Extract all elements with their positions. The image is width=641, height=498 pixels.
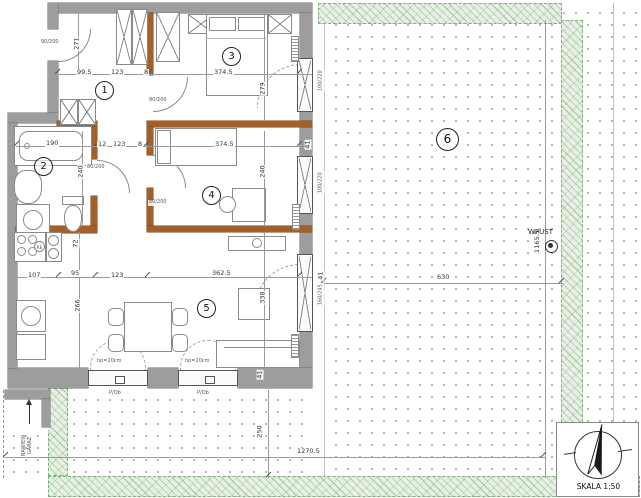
toilet-tank (62, 196, 84, 205)
garage-vent-wall-top (5, 390, 50, 399)
window-note-2: P/Ob (196, 391, 210, 397)
dim-label: 266 (75, 298, 82, 312)
dim-label: 41 (257, 369, 264, 379)
room-6-label: 6 (444, 132, 452, 146)
paving-edge-line (324, 3, 325, 478)
wall-right-3 (300, 214, 312, 254)
room3-door-swing (153, 77, 188, 112)
room-4-label: 4 (208, 190, 214, 201)
wpust-label: WPUST (527, 229, 554, 237)
cabinet-room3-right (268, 14, 292, 34)
dim-label: 41 (305, 139, 312, 149)
window-room5-balcony (297, 254, 313, 332)
plot-boundary-line (613, 3, 614, 476)
dim-label: 1270.5 (296, 448, 321, 455)
dim-label: 95 (70, 270, 80, 277)
window-bottom-2 (178, 370, 238, 386)
dining-table (124, 302, 172, 352)
window-spec-room5: 160/245 (319, 283, 325, 306)
dim-label: 107 (27, 272, 41, 279)
dim-label: 240 (78, 164, 85, 178)
wall-bottom-1 (8, 368, 88, 388)
wardrobe-hall-2 (132, 9, 148, 65)
dim-label: 99.5 (76, 69, 92, 76)
room-1-label: 1 (101, 85, 107, 96)
drain-inner-icon (548, 243, 553, 248)
dim-label: 190 (45, 140, 59, 147)
fridge-mark-icon (21, 306, 41, 326)
partition-room3-room4 (147, 121, 312, 127)
room-2-label: 2 (40, 161, 46, 172)
window-glazing (299, 158, 311, 212)
green-strip-bottom (48, 476, 640, 497)
window-room3 (297, 58, 313, 112)
room-number-4: 4 (202, 186, 221, 205)
door-spec-bath: 80/200 (86, 165, 106, 171)
partition-bath-right-b (91, 196, 97, 230)
wall-left-step (8, 113, 58, 123)
wardrobe-hall-1 (116, 9, 132, 65)
window-handle (115, 376, 125, 384)
dim-label: 8 (143, 69, 149, 76)
wall-right-4 (300, 332, 312, 368)
dim-label: 240 (260, 164, 267, 178)
sink-bowl-icon (48, 235, 59, 246)
partition-room4-room5 (147, 226, 312, 232)
desk-chair (219, 196, 236, 213)
room-number-2: 2 (34, 157, 53, 176)
wall-bottom-2 (148, 368, 178, 388)
terrace-paving-right (326, 3, 640, 478)
toilet-bowl (64, 205, 82, 232)
garage-vent-arrowhead-icon (26, 399, 32, 405)
sideboard-mark-icon (252, 238, 262, 248)
room-3-label: 3 (228, 51, 234, 62)
dining-chair (108, 308, 124, 326)
dim-label: 12 (97, 141, 107, 148)
dim-label: 271 (74, 36, 81, 50)
wall-left-upper-2 (48, 61, 58, 113)
stove-badge: RE (34, 241, 45, 252)
washbasin (14, 170, 42, 204)
dim-label: 72 (73, 238, 80, 248)
dim-line (268, 390, 269, 478)
stove-badge-text: RE (37, 245, 42, 250)
dim-line (5, 457, 545, 458)
desk (232, 188, 266, 222)
dim-label: 279 (260, 81, 267, 95)
window-note-1: P/Ob (108, 391, 122, 397)
dim-line (264, 12, 265, 121)
wall-right-1 (300, 13, 312, 58)
dining-chair (172, 308, 188, 326)
wall-bottom-3 (238, 368, 312, 388)
pillow (238, 17, 265, 31)
bed-blanket-line (206, 38, 268, 39)
dining-chair (172, 334, 188, 352)
garage-vent-label: NAWIEW GARAŻ (22, 434, 33, 457)
dim-label: 41 (318, 270, 325, 280)
radiator-room5 (291, 334, 299, 358)
title-block: SKALA 1:50 (556, 422, 639, 497)
green-strip-left (48, 388, 68, 476)
dim-label: 123 (112, 141, 126, 148)
burner-icon (17, 235, 26, 244)
kitchen-cabinet (16, 334, 46, 360)
pillow (157, 130, 171, 164)
sink-bowl-icon (48, 248, 59, 259)
room-number-1: 1 (95, 81, 114, 100)
window-sill-note-1: hp=20cm (96, 359, 123, 365)
dim-label: 123 (110, 69, 124, 76)
wall-left-upper-1 (48, 3, 58, 29)
dim-label: 338 (260, 290, 267, 304)
radiator-room3 (291, 36, 299, 62)
shoe-cabinet-1 (60, 99, 78, 125)
floor-plan-canvas: NAWIEW GARAŻ RE (0, 0, 641, 498)
door-spec-room4: 80/200 (148, 200, 168, 206)
scale-label: SKALA 1:50 (557, 482, 640, 491)
dim-label: 630 (436, 274, 450, 281)
dim-line (322, 283, 563, 284)
window-spec-room3: 100/220 (319, 69, 325, 92)
window-glazing (299, 256, 311, 330)
dim-label: 8 (137, 141, 143, 148)
dining-chair (108, 334, 124, 352)
garage-vent-wall-right (42, 399, 50, 427)
pillow (209, 17, 236, 31)
shoe-cabinet-2 (78, 99, 96, 125)
radiator-room4 (292, 204, 300, 230)
door-spec-room3: 80/200 (148, 98, 168, 104)
room-number-6: 6 (436, 128, 459, 151)
sofa-back-line (224, 340, 292, 348)
washing-machine-drum-icon (23, 210, 43, 230)
dim-label: 123 (110, 272, 124, 279)
dim-line (57, 74, 312, 75)
dim-line (16, 277, 312, 278)
burner-icon (17, 247, 26, 256)
window-handle (205, 376, 215, 384)
dim-label: 362.5 (211, 270, 232, 277)
dim-line (16, 146, 312, 147)
partition-hall-room4-b (147, 188, 153, 228)
dim-label: 250 (257, 424, 264, 438)
window-sill-note-2: hp=20cm (184, 359, 211, 365)
dim-label: 374.5 (214, 141, 235, 148)
wardrobe-room3-left (156, 12, 180, 62)
garage-vent-arrow (29, 404, 30, 424)
dim-label: 374.5 (213, 69, 234, 76)
wall-top (48, 3, 312, 13)
room-number-3: 3 (222, 47, 241, 66)
door-spec-entrance: 90/200 (40, 40, 60, 46)
room-number-5: 5 (197, 299, 216, 318)
room-5-label: 5 (203, 303, 209, 314)
garage-vent-line2: GARAŻ (27, 437, 33, 454)
window-spec-room4: 100/220 (319, 171, 325, 194)
window-bottom-1 (88, 370, 148, 386)
green-strip-top (318, 3, 562, 24)
